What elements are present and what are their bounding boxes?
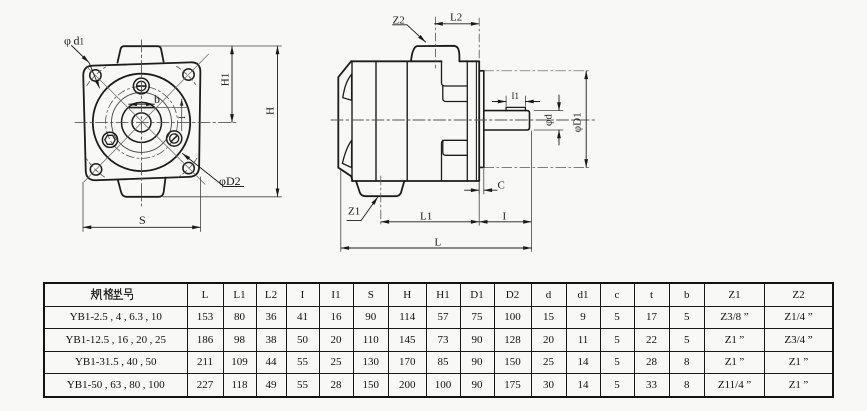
svg-text:H1: H1 xyxy=(220,73,232,86)
svg-text:S: S xyxy=(139,213,146,227)
svg-text:C: C xyxy=(498,180,505,192)
svg-text:φD1: φD1 xyxy=(572,112,584,132)
svg-text:H: H xyxy=(265,107,277,115)
svg-text:L1: L1 xyxy=(420,210,432,222)
svg-text:L: L xyxy=(435,237,442,249)
svg-text:I: I xyxy=(503,210,507,222)
svg-text:I: I xyxy=(177,116,187,119)
svg-text:φd1: φd1 xyxy=(64,34,84,48)
svg-text:φD2: φD2 xyxy=(219,174,241,188)
svg-text:b: b xyxy=(154,92,160,106)
svg-text:L2: L2 xyxy=(450,12,462,24)
svg-text:φd: φd xyxy=(543,114,555,126)
svg-text:Z1: Z1 xyxy=(348,206,360,218)
svg-text:I1: I1 xyxy=(512,91,520,101)
